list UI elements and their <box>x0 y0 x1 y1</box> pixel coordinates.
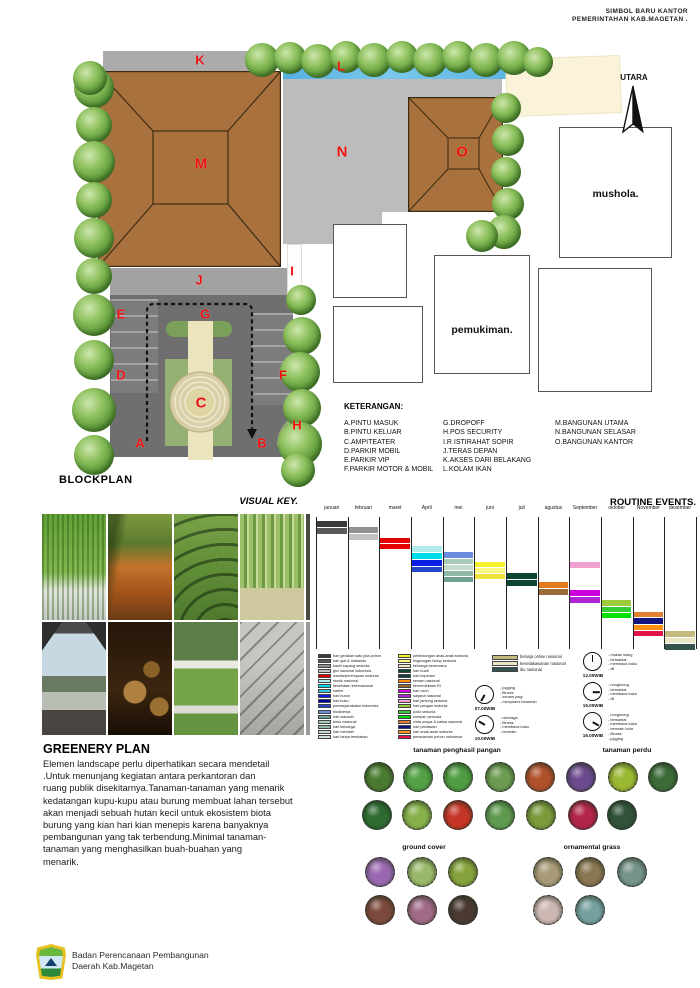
plan-label-H: H <box>292 418 301 433</box>
tree-icon <box>74 340 114 380</box>
event-bar <box>570 590 600 596</box>
plant-photo-circle <box>525 762 555 792</box>
plant-photo-circle <box>485 800 515 830</box>
event-bar <box>412 567 442 572</box>
tree-icon <box>281 453 315 487</box>
plant-photo-circle <box>443 800 473 830</box>
plan-label-N: N <box>337 144 348 161</box>
plan-label-D: D <box>116 368 125 383</box>
agency-logo <box>36 944 66 980</box>
event-bar <box>634 631 664 636</box>
event-bar <box>665 644 695 650</box>
event-bar <box>539 589 569 595</box>
event-bar <box>475 574 505 579</box>
tree-icon <box>286 285 316 315</box>
event-bar <box>634 612 664 617</box>
poster-canvas: SIMBOL BARU KANTOR PEMERINTAHAN KAB.MAGE… <box>0 0 700 988</box>
plant-group-title: ground cover <box>402 844 445 851</box>
plant-photo-circle <box>648 762 678 792</box>
tree-icon <box>523 47 553 77</box>
tree-icon <box>76 182 112 218</box>
event-bar <box>475 562 505 567</box>
tree-icon <box>76 258 112 294</box>
event-bar <box>444 577 474 582</box>
agency-line1: Badan Perencanaan Pembangunan <box>72 950 209 961</box>
plant-photo-circle <box>443 762 473 792</box>
plan-label-B: B <box>257 436 266 451</box>
tree-icon <box>466 220 498 252</box>
plan-label-I: I <box>290 264 294 279</box>
event-bar <box>539 582 569 588</box>
plant-photo-circle <box>568 800 598 830</box>
tree-icon <box>491 93 521 123</box>
event-bar <box>475 568 505 573</box>
plant-photo-circle <box>448 895 478 925</box>
plan-label-J: J <box>195 273 202 288</box>
event-bar <box>444 565 474 570</box>
plan-label-O: O <box>456 144 468 161</box>
event-bar <box>570 562 600 568</box>
tree-icon <box>74 435 114 475</box>
event-bar <box>317 528 347 534</box>
plant-photo-circle <box>533 895 563 925</box>
event-bar <box>412 553 442 559</box>
event-bar <box>507 580 537 586</box>
plan-label-L: L <box>337 59 345 74</box>
event-bar <box>412 546 442 552</box>
plant-photo-circle <box>362 800 392 830</box>
plant-photo-circle <box>402 800 432 830</box>
plant-photo-circle <box>407 857 437 887</box>
event-bar <box>412 560 442 566</box>
plant-group-title: tanaman penghasil pangan <box>413 747 501 754</box>
event-bar <box>317 521 347 527</box>
plan-label-M: M <box>195 156 208 173</box>
tree-icon <box>492 124 524 156</box>
event-bar <box>570 597 600 603</box>
plant-photo-circle <box>533 857 563 887</box>
event-bar <box>602 607 632 612</box>
plan-label-A: A <box>135 436 144 451</box>
event-bar <box>634 618 664 624</box>
event-bar <box>507 573 537 579</box>
event-bar <box>665 638 695 643</box>
plant-photo-circle <box>617 857 647 887</box>
plant-photo-circle <box>365 895 395 925</box>
plant-photo-circle <box>448 857 478 887</box>
tree-icon <box>76 107 112 143</box>
event-bar <box>602 600 632 606</box>
plan-label-C: C <box>196 395 207 412</box>
tree-icon <box>283 317 321 355</box>
plan-label-K: K <box>195 53 204 68</box>
event-bar <box>634 625 664 630</box>
plant-photo-circle <box>364 762 394 792</box>
plan-label-E: E <box>117 307 126 322</box>
plant-photo-circle <box>403 762 433 792</box>
plant-photo-circle <box>575 857 605 887</box>
plant-photo-circle <box>607 800 637 830</box>
plant-group-title: ornamental grass <box>564 844 621 851</box>
plant-photo-circle <box>365 857 395 887</box>
plant-photo-circle <box>485 762 515 792</box>
event-bar <box>444 552 474 558</box>
tree-icon <box>491 157 521 187</box>
event-bar <box>380 544 410 549</box>
tree-icon <box>73 294 115 336</box>
tree-icon <box>73 141 115 183</box>
tree-icon <box>74 218 114 258</box>
tree-icon <box>72 388 116 432</box>
event-bar <box>380 538 410 543</box>
plant-photo-circle <box>608 762 638 792</box>
plant-photo-circle <box>575 895 605 925</box>
agency-line2: Daerah Kab.Magetan <box>72 961 209 972</box>
event-bar <box>349 534 379 540</box>
event-bar <box>444 571 474 576</box>
agency-name: Badan Perencanaan Pembangunan Daerah Kab… <box>72 950 209 972</box>
plan-label-G: G <box>200 307 210 322</box>
event-bar <box>349 527 379 533</box>
event-bar <box>602 613 632 618</box>
plant-photo-circle <box>526 800 556 830</box>
plant-group-title: tanaman perdu <box>603 747 652 754</box>
tree-icon <box>73 61 107 95</box>
plant-photo-circle <box>566 762 596 792</box>
plant-photo-circle <box>407 895 437 925</box>
event-bar <box>444 559 474 564</box>
plan-label-F: F <box>279 368 287 383</box>
event-bar <box>665 631 695 637</box>
